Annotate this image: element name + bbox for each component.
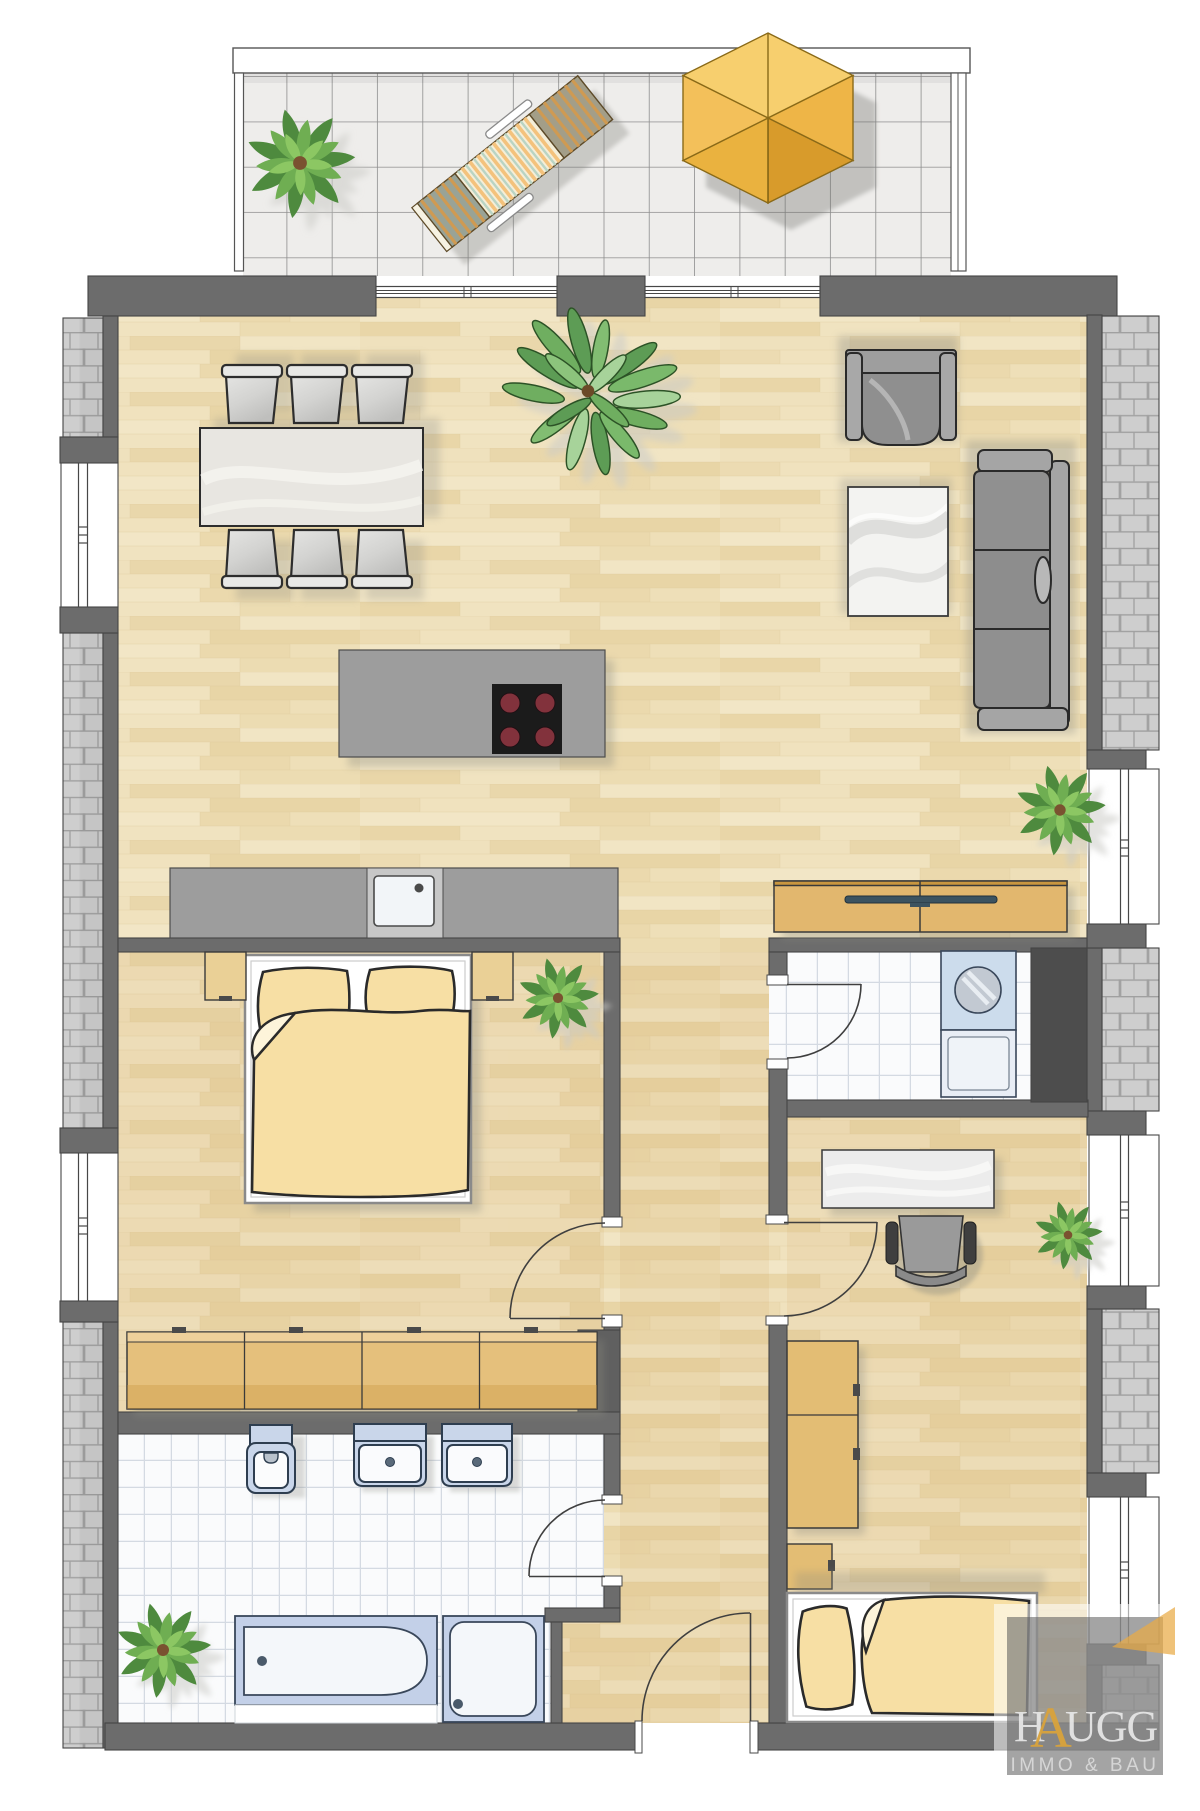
svg-text:A: A [1030,1695,1072,1760]
svg-text:IMMO & BAU: IMMO & BAU [1010,1755,1159,1776]
svg-text:UGG: UGG [1065,1702,1158,1751]
